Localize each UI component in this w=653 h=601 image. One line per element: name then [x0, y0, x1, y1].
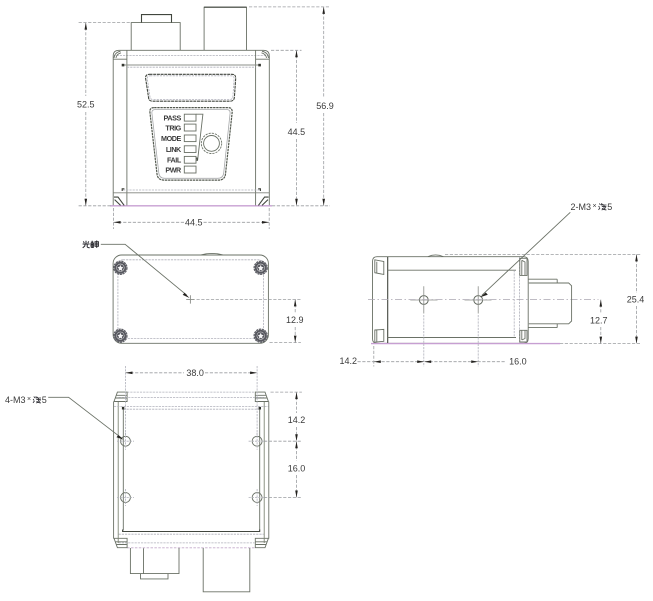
- svg-text:4-M3: 4-M3: [5, 395, 26, 405]
- svg-text:PWR: PWR: [165, 165, 182, 174]
- svg-text:×: ×: [27, 396, 31, 403]
- svg-text:44.5: 44.5: [288, 127, 306, 137]
- svg-text:12.7: 12.7: [590, 315, 608, 325]
- svg-text:44.5: 44.5: [185, 218, 203, 228]
- svg-text:LINK: LINK: [166, 145, 182, 154]
- svg-text:16.0: 16.0: [509, 356, 527, 366]
- svg-text:5: 5: [607, 202, 612, 212]
- svg-text:14.2: 14.2: [340, 356, 358, 366]
- svg-text:14.2: 14.2: [288, 415, 306, 425]
- svg-text:12.9: 12.9: [286, 315, 304, 325]
- svg-text:16.0: 16.0: [288, 464, 306, 474]
- svg-text:2-M3: 2-M3: [571, 202, 592, 212]
- svg-text:5: 5: [42, 395, 47, 405]
- svg-text:38.0: 38.0: [186, 368, 204, 378]
- svg-text:PASS: PASS: [164, 114, 182, 123]
- svg-text:TRIG: TRIG: [165, 124, 181, 133]
- svg-text:×: ×: [593, 203, 597, 210]
- svg-text:52.5: 52.5: [77, 99, 95, 109]
- svg-text:MODE: MODE: [161, 134, 181, 143]
- svg-text:25.4: 25.4: [627, 295, 645, 305]
- svg-text:FAIL: FAIL: [167, 156, 182, 165]
- svg-text:56.9: 56.9: [316, 101, 334, 111]
